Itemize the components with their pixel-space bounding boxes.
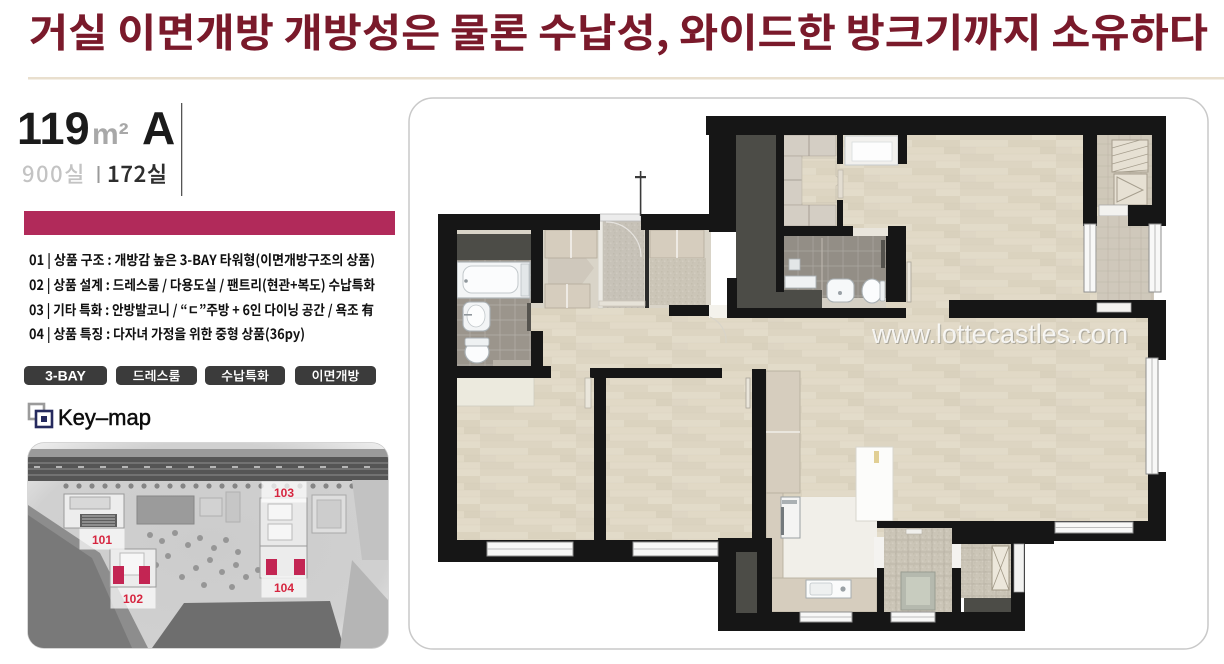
svg-text:www.lottecastles.com: www.lottecastles.com xyxy=(871,319,1128,349)
svg-text:102: 102 xyxy=(123,592,143,606)
svg-text:A: A xyxy=(142,102,175,154)
svg-text:101: 101 xyxy=(92,533,112,547)
svg-text:3-BAY: 3-BAY xyxy=(45,368,86,384)
svg-text:119: 119 xyxy=(17,103,90,154)
svg-text:Key–map: Key–map xyxy=(58,405,151,430)
svg-text:103: 103 xyxy=(274,486,294,500)
svg-text:m²: m² xyxy=(92,118,129,151)
svg-text:104: 104 xyxy=(274,581,294,595)
